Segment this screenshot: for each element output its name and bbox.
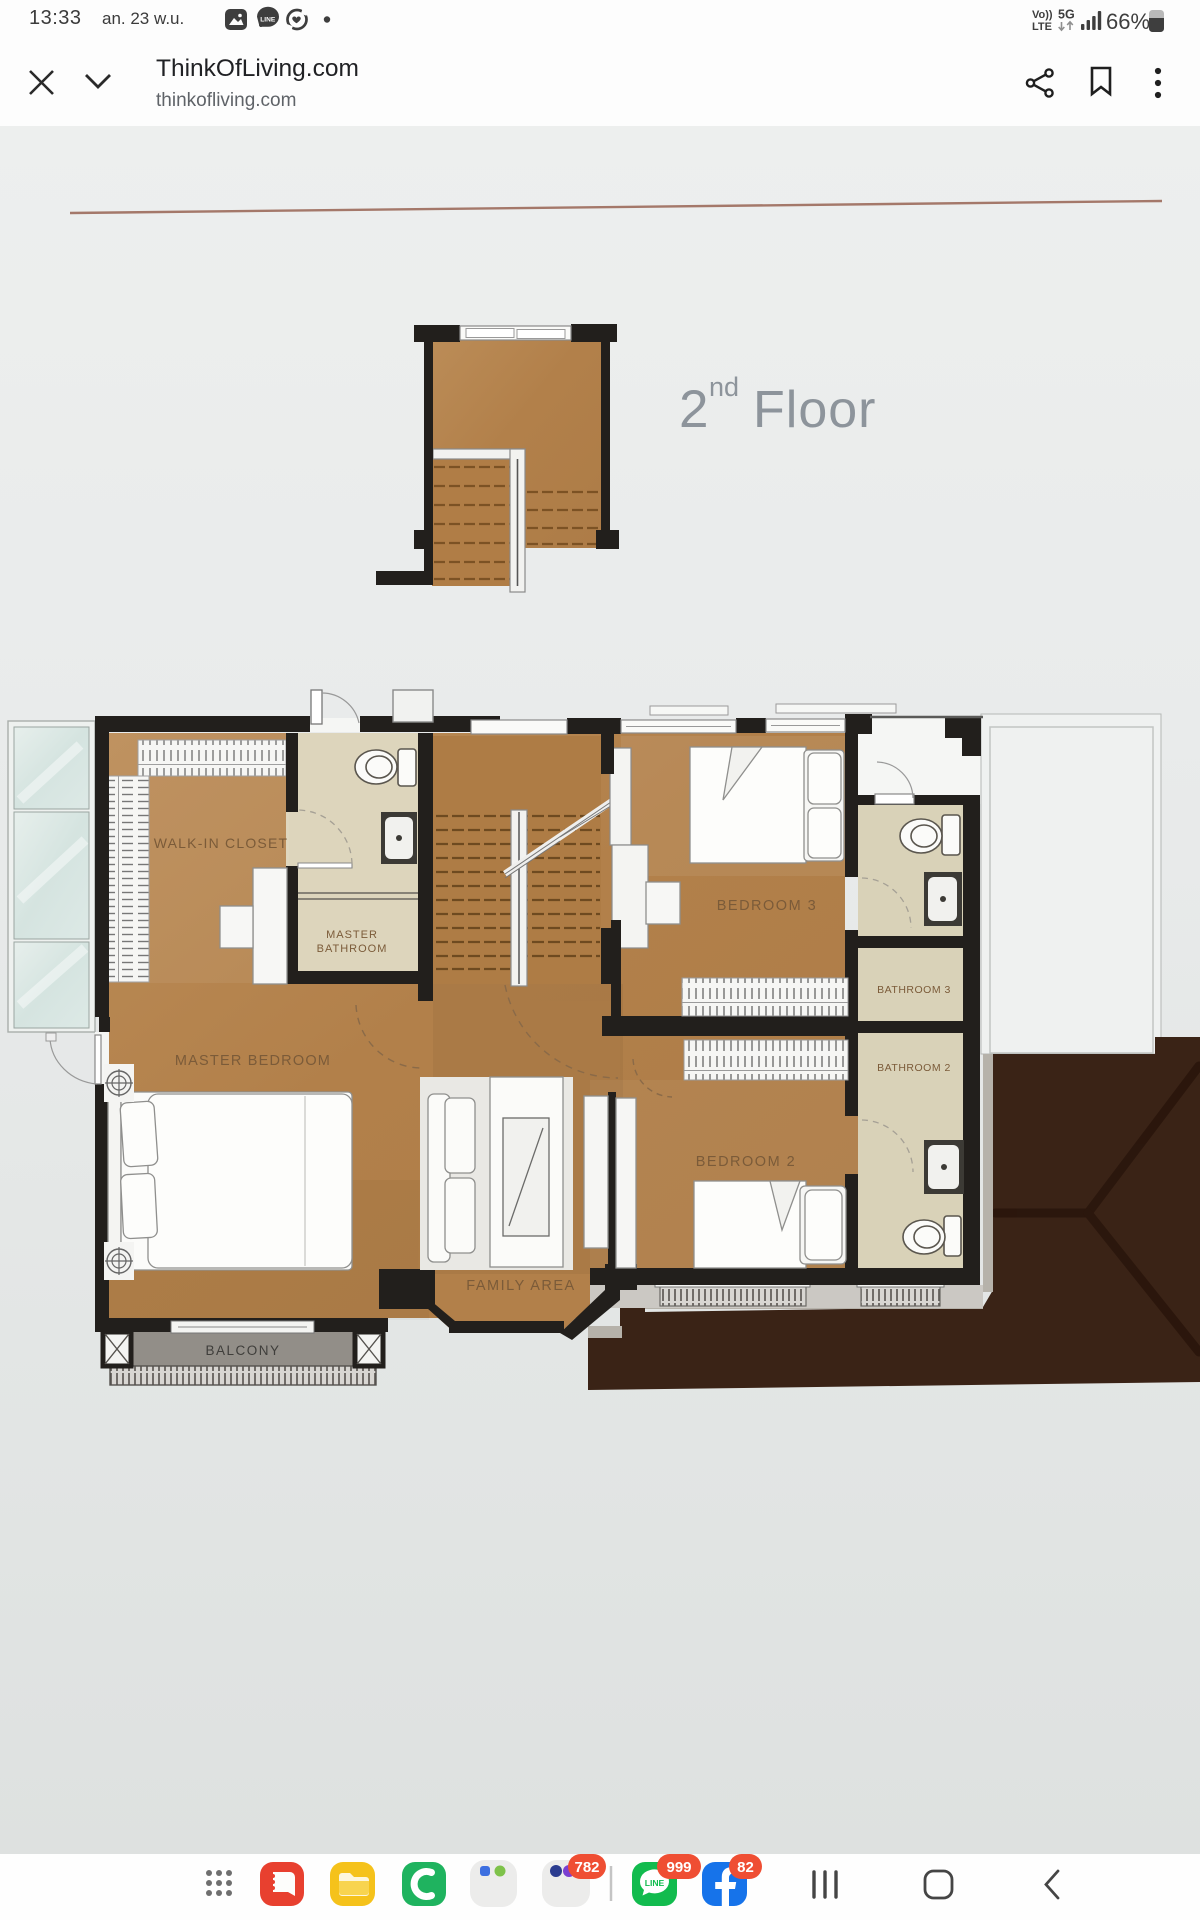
svg-text:WALK-IN CLOSET: WALK-IN CLOSET — [154, 835, 289, 851]
svg-text:MASTER BEDROOM: MASTER BEDROOM — [175, 1053, 331, 1069]
svg-text:782: 782 — [574, 1859, 599, 1876]
svg-text:LINE: LINE — [260, 17, 276, 24]
svg-text:BEDROOM 3: BEDROOM 3 — [717, 898, 818, 914]
svg-text:82: 82 — [737, 1859, 754, 1876]
svg-text:BATHROOM: BATHROOM — [317, 943, 388, 955]
svg-text:Floor: Floor — [753, 381, 876, 439]
svg-text:BATHROOM 3: BATHROOM 3 — [877, 984, 951, 996]
svg-text:FAMILY AREA: FAMILY AREA — [466, 1278, 575, 1294]
svg-text:LTE: LTE — [1032, 21, 1052, 33]
svg-text:LINE: LINE — [645, 1878, 665, 1888]
svg-text:Vo)): Vo)) — [1032, 9, 1053, 21]
svg-text:BEDROOM 2: BEDROOM 2 — [696, 1154, 797, 1170]
svg-text:nd: nd — [709, 372, 739, 402]
svg-text:999: 999 — [666, 1859, 691, 1876]
svg-text:MASTER: MASTER — [326, 929, 378, 941]
svg-text:2: 2 — [679, 380, 708, 439]
svg-text:5G: 5G — [1058, 8, 1075, 22]
svg-text:BATHROOM 2: BATHROOM 2 — [877, 1062, 951, 1074]
svg-text:BALCONY: BALCONY — [205, 1343, 280, 1358]
svg-text:66%: 66% — [1106, 9, 1150, 34]
